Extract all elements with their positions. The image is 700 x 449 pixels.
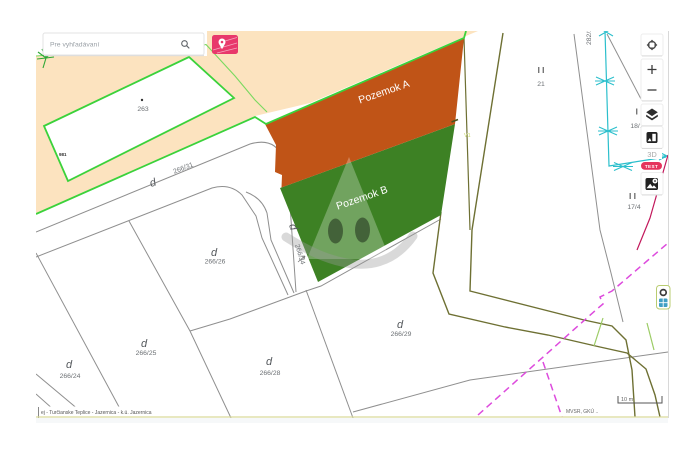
svg-text:3D: 3D [647, 150, 657, 159]
svg-text:21: 21 [537, 81, 545, 88]
svg-text:d: d [66, 359, 73, 371]
svg-text:d: d [266, 356, 273, 368]
svg-text:MVSR, GKÚ ..: MVSR, GKÚ .. [566, 408, 598, 415]
svg-text:ej - Turčianske Teplice - Jaze: ej - Turčianske Teplice - Jazernica - k.… [41, 410, 152, 416]
svg-text:10 m: 10 m [621, 397, 634, 403]
svg-text:266/28: 266/28 [260, 370, 281, 377]
svg-text:V1: V1 [464, 133, 471, 139]
svg-text:266/26: 266/26 [205, 259, 226, 266]
svg-text:d: d [397, 319, 404, 331]
svg-text:Pre vyhľadávaní: Pre vyhľadávaní [50, 42, 99, 49]
svg-text:282/2: 282/2 [586, 28, 593, 45]
svg-text:263: 263 [137, 106, 149, 113]
svg-text:266/25: 266/25 [136, 350, 157, 357]
svg-text:266/24: 266/24 [60, 373, 81, 380]
svg-text:981: 981 [59, 152, 67, 157]
svg-text:d: d [141, 338, 148, 350]
svg-text:TEST: TEST [645, 164, 658, 169]
svg-text:17/4: 17/4 [627, 204, 640, 211]
svg-text:d: d [211, 247, 218, 259]
svg-text:266/29: 266/29 [391, 331, 412, 338]
